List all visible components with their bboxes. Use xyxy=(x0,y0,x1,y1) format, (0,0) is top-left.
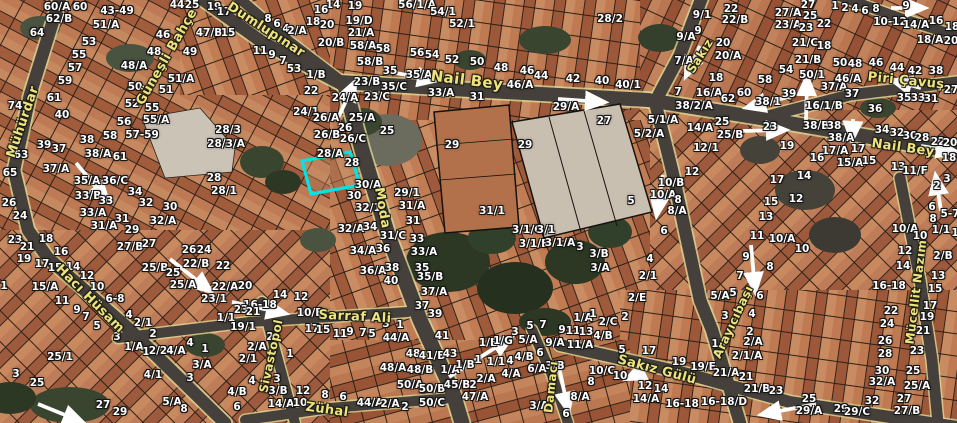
parcel-number-label: 29 xyxy=(518,139,533,151)
parcel-number-label: 7 xyxy=(539,319,546,331)
parcel-number-label: 44/A xyxy=(383,332,410,344)
parcel-number-label: 32 xyxy=(865,395,880,407)
parcel-number-label: 9 xyxy=(346,326,353,338)
parcel-number-label: 4/B xyxy=(514,351,533,363)
parcel-number-label: 24 xyxy=(880,318,895,330)
parcel-number-label: 25/B xyxy=(142,262,168,274)
parcel-number-label: 19 xyxy=(780,140,795,152)
parcel-number-label: 58/A xyxy=(350,40,377,52)
parcel-number-label: 1/G xyxy=(493,335,513,347)
parcel-number-label: 29/C xyxy=(844,406,870,418)
parcel-number-label: 37/A xyxy=(421,286,448,298)
parcel-number-label: 7 xyxy=(279,55,286,67)
parcel-number-label: 4/1 xyxy=(144,369,162,381)
parcel-number-label: 22 xyxy=(216,260,231,272)
parcel-number-label: 15 xyxy=(764,196,779,208)
parcel-number-label: 5/2/A xyxy=(634,128,664,140)
parcel-number-label: 3/1/A xyxy=(545,237,575,249)
parcel-number-label: 30 xyxy=(163,201,178,213)
parcel-number-label: 44 xyxy=(170,0,185,11)
parcel-number-label: 4 xyxy=(125,309,132,321)
parcel-number-label: 56 xyxy=(410,47,425,59)
parcel-number-label: 36/A xyxy=(360,265,387,277)
parcel-number-label: 33/B xyxy=(75,190,101,202)
parcel-number-label: 15 xyxy=(928,283,943,295)
parcel-number-label: 21 xyxy=(20,241,35,253)
parcel-number-label: 16/1/B xyxy=(805,100,843,112)
parcel-number-label: 25/1 xyxy=(47,351,73,363)
parcel-number-label: 33/A xyxy=(80,207,107,219)
parcel-number-label: 38/A xyxy=(85,148,112,160)
parcel-number-label: 56 xyxy=(117,116,132,128)
parcel-number-label: 28 xyxy=(345,157,360,169)
parcel-number-label: 6 xyxy=(536,347,543,359)
parcel-number-label: 16 xyxy=(929,15,944,27)
parcel-number-label: 5/A xyxy=(162,396,181,408)
parcel-number-label: 3 xyxy=(273,373,280,385)
parcel-number-label: 48/B xyxy=(407,364,433,376)
parcel-number-label: 40 xyxy=(595,75,610,87)
parcel-number-label: 2 xyxy=(621,311,628,323)
parcel-number-label: 2 xyxy=(401,401,408,413)
parcel-number-label: 40 xyxy=(384,275,399,287)
parcel-number-label: 51 xyxy=(159,84,174,96)
parcel-number-label: 34 xyxy=(363,221,378,233)
parcel-number-label: 16-18 xyxy=(665,398,699,410)
parcel-number-label: 26 xyxy=(182,244,197,256)
parcel-number-label: 6 xyxy=(339,391,346,403)
parcel-number-label: 28 xyxy=(207,172,222,184)
parcel-number-label: 48/A xyxy=(380,362,407,374)
parcel-number-label: 1/1 xyxy=(932,224,950,236)
parcel-number-label: 14 xyxy=(896,260,911,272)
parcel-number-label: 32/A xyxy=(150,215,177,227)
parcel-number-label: 13 xyxy=(759,211,774,223)
parcel-number-label: 10/C xyxy=(589,365,615,377)
parcel-number-label: 57 xyxy=(68,62,83,74)
parcel-number-label: 34 xyxy=(875,124,890,136)
parcel-number-label: 17 xyxy=(770,174,785,186)
parcel-number-label: 23/A xyxy=(775,19,802,31)
parcel-number-label: 40 xyxy=(55,109,70,121)
parcel-number-label: 4 xyxy=(646,253,653,265)
parcel-number-label: 2/B xyxy=(933,250,952,262)
parcel-number-label: 4/A xyxy=(501,368,520,380)
parcel-number-label: 38 xyxy=(80,134,95,146)
parcel-number-label: 26 xyxy=(2,197,17,209)
parcel-number-label: 23/1 xyxy=(201,293,227,305)
parcel-number-label: 23/C xyxy=(364,91,390,103)
parcel-number-label: 64 xyxy=(30,27,45,39)
parcel-number-label: 44 xyxy=(534,70,549,82)
parcel-number-label: 21/A xyxy=(713,367,740,379)
parcel-number-label: 3 xyxy=(943,173,950,185)
parcel-number-label: 1/B xyxy=(455,359,474,371)
parcel-number-label: 10/B xyxy=(658,177,684,189)
parcel-number-label: 9 xyxy=(73,304,80,316)
parcel-number-label: 25 xyxy=(380,125,395,137)
parcel-number-label: 18 xyxy=(709,72,724,84)
parcel-number-label: 25 xyxy=(166,267,181,279)
parcel-number-label: 20 xyxy=(238,280,253,292)
parcel-number-label: 39 xyxy=(428,308,443,320)
parcel-number-label: 58/B xyxy=(357,56,383,68)
parcel-number-label: 35/A xyxy=(406,69,433,81)
parcel-number-label: 43-49 xyxy=(100,5,134,17)
parcel-number-label: 2/1 xyxy=(239,353,257,365)
parcel-number-label: 9 xyxy=(268,49,275,61)
parcel-number-label: 24 xyxy=(13,210,28,222)
parcel-number-label: 33/A xyxy=(411,246,438,258)
parcel-number-label: 28 xyxy=(878,348,893,360)
parcel-number-label: 2/1/A xyxy=(732,350,762,362)
parcel-number-label: 55/A xyxy=(143,114,170,126)
parcel-number-label: 50/B xyxy=(419,383,445,395)
parcel-number-label: 6 xyxy=(861,5,868,17)
parcel-number-label: 20 xyxy=(944,35,957,47)
parcel-number-label: 11 xyxy=(750,230,765,242)
parcel-number-label: 32/A xyxy=(338,223,365,235)
parcel-number-label: 1 xyxy=(951,227,957,239)
parcel-number-label: 11/F xyxy=(902,165,928,177)
parcel-number-label: 2 xyxy=(933,180,940,192)
parcel-number-label: 27 xyxy=(944,84,957,96)
parcel-number-label: 42 xyxy=(566,73,581,85)
parcel-number-label: 35/A xyxy=(74,175,101,187)
parcel-number-label: 25/A xyxy=(170,279,197,291)
parcel-number-label: 47/A xyxy=(462,391,489,403)
parcel-number-label: 15 xyxy=(221,27,236,39)
parcel-number-label: 12 xyxy=(296,385,311,397)
parcel-number-label: 2/E xyxy=(628,292,646,304)
parcel-number-label: 8 xyxy=(766,261,773,273)
parcel-number-label: 29/A xyxy=(553,101,580,113)
parcel-number-label: 19/D xyxy=(345,15,372,27)
parcel-number-label: 3/A xyxy=(192,359,211,371)
parcel-number-label: 41/B xyxy=(419,350,445,362)
parcel-number-label: 50 xyxy=(833,57,848,69)
parcel-number-label: 28/3 xyxy=(215,124,241,136)
parcel-number-label: 17 xyxy=(642,345,657,357)
parcel-number-label: 31 xyxy=(406,215,421,227)
parcel-number-label: 6/A xyxy=(527,363,546,375)
parcel-number-label: 41 xyxy=(435,330,450,342)
parcel-number-label: 31/1 xyxy=(479,205,505,217)
parcel-number-label: 11 xyxy=(55,295,70,307)
parcel-number-label: 15 xyxy=(316,324,331,336)
parcel-number-label: 7 xyxy=(82,311,89,323)
parcel-number-label: 25/B xyxy=(717,129,743,141)
parcel-number-label: 47/B xyxy=(196,27,222,39)
parcel-number-label: 27/B xyxy=(894,405,920,417)
parcel-number-label: 3 xyxy=(186,372,193,384)
parcel-number-label: 16 xyxy=(810,152,825,164)
parcel-number-label: 33/A xyxy=(428,87,455,99)
parcel-number-label: 36/C xyxy=(102,175,128,187)
parcel-number-label: 34/A xyxy=(350,245,377,257)
parcel-number-label: 8/A xyxy=(570,391,589,403)
parcel-number-label: 2/2 xyxy=(149,345,167,357)
parcel-number-label: 6 xyxy=(756,290,763,302)
parcel-number-label: 57-59 xyxy=(125,129,159,141)
parcel-number-label: 25 xyxy=(906,365,921,377)
parcel-number-label: 25/A xyxy=(904,380,931,392)
parcel-number-label: 12 xyxy=(898,245,913,257)
parcel-number-label: 4/A xyxy=(166,345,185,357)
parcel-number-label: 27/A xyxy=(775,7,802,19)
parcel-number-label: 14 xyxy=(273,289,288,301)
parcel-number-label: 46/A xyxy=(835,73,862,85)
parcel-number-label: 30 xyxy=(875,365,890,377)
parcel-number-label: 4/B xyxy=(227,386,246,398)
parcel-number-label: 6 xyxy=(233,401,240,413)
parcel-number-label: 20 xyxy=(943,137,957,149)
parcel-number-label: 18/A xyxy=(917,34,944,46)
parcel-number-label: 31/A xyxy=(91,220,118,232)
parcel-number-label: 10 xyxy=(795,243,810,255)
parcel-number-label: 1 xyxy=(286,348,293,360)
parcel-number-label: 12 xyxy=(685,166,700,178)
parcel-number-label: 21/C xyxy=(792,37,818,49)
parcel-number-label: 16 xyxy=(314,4,329,16)
parcel-number-label: 33 xyxy=(410,233,425,245)
parcel-number-label: 28/2 xyxy=(597,13,623,25)
parcel-number-label: 38/B xyxy=(803,120,829,132)
parcel-number-label: 54 xyxy=(779,64,794,76)
parcel-number-label: 31/C xyxy=(380,230,406,242)
parcel-number-label: 25/A xyxy=(349,112,376,124)
parcel-number-label: 36 xyxy=(868,103,883,115)
parcel-number-label: 1/A xyxy=(124,341,143,353)
parcel-number-label: 8 xyxy=(180,403,187,415)
parcel-number-label: 6 xyxy=(660,225,667,237)
parcel-number-label: 20 xyxy=(716,37,731,49)
parcel-number-label: 25 xyxy=(803,10,818,22)
parcel-number-label: 20/A xyxy=(715,50,742,62)
parcel-number-label: 4 xyxy=(851,3,858,15)
parcel-number-label: 27 xyxy=(96,399,111,411)
parcel-number-label: 18 xyxy=(817,40,832,52)
parcel-number-label: 46/A xyxy=(507,79,534,91)
parcel-number-label: 62/B xyxy=(46,13,72,25)
parcel-number-label: 24 xyxy=(197,244,212,256)
parcel-number-label: 23 xyxy=(769,385,784,397)
parcel-number-label: 2 xyxy=(149,328,156,340)
parcel-number-label: 14 xyxy=(797,170,812,182)
parcel-number-label: 22 xyxy=(884,305,899,317)
parcel-number-label: 2 xyxy=(841,2,848,14)
parcel-number-label: 30 xyxy=(347,190,362,202)
parcel-number-label: 58 xyxy=(758,74,773,86)
parcel-number-label: 4 xyxy=(748,308,755,320)
parcel-number-label: 2/C xyxy=(599,316,618,328)
parcel-number-label: 38 xyxy=(385,262,400,274)
parcel-number-label: 2/A xyxy=(380,398,399,410)
parcel-number-label: 23/B xyxy=(354,76,380,88)
parcel-number-label: 12 xyxy=(789,193,804,205)
parcel-number-label: 62 xyxy=(721,93,736,105)
parcel-number-label: 20/B xyxy=(318,37,344,49)
parcel-number-label: 5 xyxy=(368,328,375,340)
parcel-number-label: 61 xyxy=(113,151,128,163)
parcel-number-label: 52/1 xyxy=(449,18,475,30)
parcel-number-label: 7 xyxy=(674,86,681,98)
parcel-number-label: 8 xyxy=(321,389,328,401)
parcel-number-label: 29 xyxy=(445,139,460,151)
parcel-number-label: 37 xyxy=(845,88,860,100)
parcel-number-label: 14/A xyxy=(687,122,714,134)
parcel-number-label: 12 xyxy=(638,380,653,392)
parcel-number-label: 29 xyxy=(113,406,128,418)
parcel-number-label: 18 xyxy=(942,152,957,164)
parcel-number-label: 39 xyxy=(782,88,797,100)
parcel-number-label: 28/A xyxy=(317,148,344,160)
parcel-number-label: 29/1 xyxy=(394,187,420,199)
parcel-number-label: 11 xyxy=(253,45,268,57)
parcel-number-label: 10 xyxy=(613,370,628,382)
parcel-number-label: 4 xyxy=(248,375,255,387)
parcel-number-label: 29/A xyxy=(796,405,823,417)
parcel-number-label: 48 xyxy=(494,62,509,74)
parcel-number-label: 27 xyxy=(142,238,157,250)
parcel-number-label: 60 xyxy=(73,1,88,13)
parcel-number-label: 16-18 xyxy=(872,280,906,292)
parcel-number-label: 5/1/A xyxy=(648,114,678,126)
parcel-number-label: 37 xyxy=(52,143,67,155)
parcel-number-label: 15/A xyxy=(837,157,864,169)
parcel-number-label: 20 xyxy=(320,19,335,31)
parcel-number-label: 9/A xyxy=(545,337,564,349)
parcel-number-label: 21/B xyxy=(795,54,821,66)
parcel-number-label: 40/1 xyxy=(615,79,641,91)
parcel-number-label: 12/1 xyxy=(693,142,719,154)
parcel-number-label: 3 xyxy=(576,241,583,253)
map-viewport[interactable]: 60/A6043-4962/B51/A645355575961407446484… xyxy=(0,0,957,423)
parcel-number-label: 65 xyxy=(3,167,18,179)
parcel-number-label: 35 xyxy=(383,65,398,77)
parcel-number-label: 50/1 xyxy=(799,69,825,81)
parcel-number-label: 14/A xyxy=(903,19,930,31)
parcel-number-label: 19 xyxy=(17,253,32,265)
parcel-number-label: 8 xyxy=(872,3,879,15)
parcel-number-label: 26/C xyxy=(340,133,366,145)
parcel-number-label: 11/A xyxy=(567,339,594,351)
parcel-number-label: 25 xyxy=(30,377,45,389)
parcel-number-label: 16-18/D xyxy=(701,396,747,408)
parcel-number-label: 32 xyxy=(139,197,154,209)
parcel-number-label: 13 xyxy=(931,270,946,282)
parcel-number-label: 4 xyxy=(506,355,513,367)
parcel-number-label: 54/1 xyxy=(430,6,456,18)
parcel-number-label: 22 xyxy=(304,85,319,97)
parcel-number-label: 27 xyxy=(597,115,612,127)
parcel-number-label: 22/B xyxy=(722,14,748,26)
parcel-number-label: 1 xyxy=(396,319,403,331)
parcel-number-label: 52 xyxy=(445,54,460,66)
parcel-number-label: 1 xyxy=(201,343,208,355)
parcel-number-label: 1/B xyxy=(306,69,325,81)
parcel-number-label: 44/A xyxy=(357,397,384,409)
parcel-number-label: 1 xyxy=(589,308,596,320)
large-buildings xyxy=(434,104,652,238)
parcel-number-label: 61 xyxy=(47,92,62,104)
parcel-number-label: 53 xyxy=(287,63,302,75)
parcel-number-label: 38 xyxy=(827,120,842,132)
parcel-number-label: 23 xyxy=(910,345,925,357)
parcel-number-label: 9/A xyxy=(676,31,695,43)
parcel-number-label: 16 xyxy=(54,246,69,258)
parcel-number-label: 2/A xyxy=(287,25,306,37)
parcel-number-label: 6 xyxy=(928,201,935,213)
parcel-number-label: 54 xyxy=(425,49,440,61)
parcel-number-label: 32/A xyxy=(869,376,896,388)
parcel-number-label: 53 xyxy=(82,36,97,48)
parcel-number-label: 35 xyxy=(897,92,912,104)
parcel-number-label: 2/1 xyxy=(639,270,657,282)
parcel-number-label: 19 xyxy=(920,311,935,323)
parcel-number-label: 45/B xyxy=(444,379,470,391)
parcel-number-label: 22 xyxy=(817,18,832,30)
parcel-number-label: 9 xyxy=(558,324,565,336)
parcel-number-label: 26/B xyxy=(314,129,340,141)
parcel-number-label: 5/A xyxy=(518,334,537,346)
parcel-number-label: 35/B xyxy=(417,271,443,283)
parcel-number-label: 48/A xyxy=(121,60,148,72)
parcel-number-label: 1 xyxy=(0,280,7,292)
parcel-number-label: 2/A xyxy=(743,336,762,348)
parcel-number-label: 2/A xyxy=(476,373,495,385)
parcel-number-label: 3 xyxy=(12,368,19,380)
parcel-number-label: 9 xyxy=(902,0,909,12)
parcel-number-label: 29 xyxy=(125,224,140,236)
parcel-number-label: 8 xyxy=(587,376,594,388)
parcel-number-label: 1 xyxy=(831,0,838,12)
parcel-number-label: 27 xyxy=(897,393,912,405)
parcel-number-label: 26 xyxy=(878,335,893,347)
parcel-number-label: 4/B xyxy=(593,330,612,342)
parcel-number-label: 13 xyxy=(579,326,594,338)
parcel-number-label: 18 xyxy=(39,233,54,245)
parcel-number-label: 6-8 xyxy=(106,293,125,305)
parcel-number-label: 24/A xyxy=(332,92,359,104)
parcel-number-label: 31/A xyxy=(399,200,426,212)
parcel-number-label: 4 xyxy=(186,337,193,349)
parcel-number-label: 17/A xyxy=(822,145,849,157)
parcel-number-label: 9/1 xyxy=(693,9,711,21)
parcel-number-label: 16/A xyxy=(696,87,723,99)
parcel-number-label: 21/A xyxy=(348,27,375,39)
parcel-number-label: 38/2/A xyxy=(675,100,713,112)
parcel-number-label: 28/3/A xyxy=(207,138,245,150)
parcel-number-label: 60 xyxy=(737,87,752,99)
parcel-number-label: 27/B xyxy=(117,241,143,253)
parcel-number-label: 39 xyxy=(37,139,52,151)
parcel-number-label: 55 xyxy=(72,49,87,61)
parcel-number-label: 21/B xyxy=(744,383,770,395)
parcel-number-label: 48 xyxy=(848,58,863,70)
parcel-number-label: 25 xyxy=(715,116,730,128)
parcel-number-label: 31 xyxy=(924,93,939,105)
parcel-number-label: 58 xyxy=(103,130,118,142)
parcel-number-label: 50/C xyxy=(419,397,445,409)
parcel-number-label: 17 xyxy=(851,143,866,155)
parcel-number-label: 23 xyxy=(763,121,778,133)
parcel-number-label: 18 xyxy=(306,16,321,28)
parcel-number-label: 9 xyxy=(742,251,749,263)
parcel-number-label: 33 xyxy=(99,195,114,207)
parcel-number-label: 5/A xyxy=(710,290,729,302)
parcel-number-label: 36 xyxy=(376,243,391,255)
